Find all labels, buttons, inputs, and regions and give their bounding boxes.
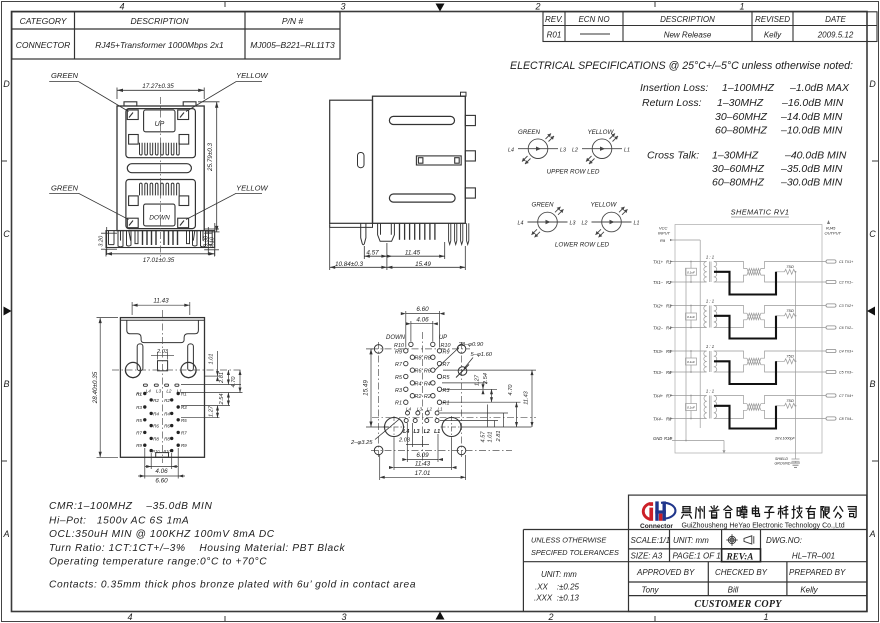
svg-text:1 : 1: 1 : 1: [706, 389, 714, 394]
svg-text:28.40±0.35: 28.40±0.35: [92, 371, 99, 404]
svg-text:C4 TX3+: C4 TX3+: [839, 350, 853, 354]
svg-text:L1: L1: [624, 147, 630, 153]
svg-text:UNIT: mm: UNIT: mm: [673, 536, 709, 545]
svg-text:1 : 1: 1 : 1: [706, 344, 714, 349]
svg-text:–10.0dB MIN: –10.0dB MIN: [780, 125, 843, 137]
svg-text:R2: R2: [153, 398, 159, 403]
svg-text:DOWN: DOWN: [149, 215, 170, 222]
svg-text:L1: L1: [437, 407, 443, 412]
svg-text:CUSTOMER COPY: CUSTOMER COPY: [694, 599, 782, 610]
svg-text:4: 4: [127, 612, 132, 622]
svg-text:R9: R9: [136, 443, 142, 448]
svg-text:CATEGORY: CATEGORY: [20, 16, 68, 26]
svg-text:GROUND: GROUND: [775, 462, 791, 466]
svg-text:GREEN: GREEN: [532, 202, 555, 209]
svg-text:Cross Talk:: Cross Talk:: [647, 150, 699, 162]
svg-text:C5 TX3–: C5 TX3–: [839, 371, 854, 375]
svg-text:11.43: 11.43: [153, 297, 169, 304]
svg-text:2: 2: [547, 612, 553, 622]
svg-text:Contacts: 0.35mm thick phos: Contacts: 0.35mm thick phos bronze plate…: [49, 580, 416, 591]
svg-text:1–30MHZ: 1–30MHZ: [717, 97, 764, 109]
svg-text:L3: L3: [570, 221, 576, 227]
svg-text:D: D: [3, 79, 10, 89]
svg-text:R9: R9: [443, 349, 450, 355]
svg-text:L2: L2: [166, 389, 172, 394]
svg-text:L3: L3: [560, 147, 566, 153]
svg-text:1 : 1: 1 : 1: [706, 255, 714, 260]
svg-text:Bill: Bill: [728, 586, 739, 595]
svg-text:Tony: Tony: [641, 586, 659, 595]
svg-text:Operating temperature range:: Operating temperature range:0°C to +70°C: [49, 557, 267, 568]
svg-text:1.27: 1.27: [208, 405, 214, 417]
svg-text:OCL:350uH MIN @ 100KHZ 100: OCL:350uH MIN @ 100KHZ 100mV 8mA DC: [49, 529, 275, 540]
svg-text:CHECKED BY: CHECKED BY: [715, 568, 768, 577]
svg-text:R4: R4: [153, 411, 159, 416]
svg-text:4.10: 4.10: [210, 236, 216, 248]
svg-text:L4: L4: [518, 221, 524, 227]
svg-text:YELLOW: YELLOW: [236, 184, 268, 193]
svg-text:4.06: 4.06: [155, 468, 168, 475]
svg-text:60–80MHZ: 60–80MHZ: [712, 177, 765, 189]
svg-text:L2: L2: [427, 407, 433, 412]
svg-text:17.01±0.35: 17.01±0.35: [143, 257, 175, 264]
svg-text:TX2+: TX2+: [653, 303, 664, 308]
svg-text:GREEN: GREEN: [51, 184, 79, 193]
svg-text:R7: R7: [395, 362, 403, 368]
svg-text:R01: R01: [547, 31, 562, 40]
svg-text:MJ005–B221–RL11T3: MJ005–B221–RL11T3: [250, 40, 335, 50]
svg-text:1.01: 1.01: [488, 432, 494, 443]
svg-text:L3: L3: [156, 389, 162, 394]
svg-text:C3 TX2+: C3 TX2+: [839, 304, 853, 308]
svg-text:LOWER ROW LED: LOWER ROW LED: [555, 242, 610, 249]
svg-text:R5: R5: [181, 418, 187, 423]
svg-text:L4: L4: [508, 147, 514, 153]
svg-text:6.60: 6.60: [416, 306, 429, 313]
svg-text:A: A: [2, 529, 9, 539]
svg-text:DATE: DATE: [825, 15, 846, 24]
svg-text:0.1uF: 0.1uF: [687, 360, 695, 364]
svg-text:2.81: 2.81: [219, 372, 225, 384]
svg-text:UNIT: mm: UNIT: mm: [541, 570, 577, 579]
svg-text:C: C: [3, 229, 10, 239]
svg-text:1.27: 1.27: [475, 374, 481, 386]
svg-text:R6: R6: [164, 424, 170, 429]
svg-text:2.54: 2.54: [219, 394, 225, 406]
svg-text:R7: R7: [136, 430, 142, 435]
svg-text:2–φ3.25: 2–φ3.25: [350, 440, 373, 446]
svg-text:R7: R7: [181, 430, 187, 435]
svg-text:L4: L4: [403, 429, 409, 435]
svg-text:SCALE:1/1: SCALE:1/1: [631, 536, 671, 545]
svg-text:11.43: 11.43: [524, 390, 530, 404]
svg-text:HL–TR–001: HL–TR–001: [792, 552, 835, 561]
svg-text:L2: L2: [582, 221, 588, 227]
svg-text:R5: R5: [443, 375, 451, 381]
svg-text:CONNECTOR: CONNECTOR: [16, 40, 71, 50]
svg-text:2: 2: [534, 2, 540, 12]
svg-text:DESCRIPTION: DESCRIPTION: [660, 15, 715, 24]
svg-text:Kelly: Kelly: [800, 586, 818, 595]
svg-text:INPUT: INPUT: [658, 231, 671, 236]
svg-text:6.60: 6.60: [155, 478, 168, 485]
svg-text:TX4–: TX4–: [653, 416, 664, 421]
svg-text:60–80MHZ: 60–80MHZ: [715, 125, 768, 137]
svg-text:10.84±0.3: 10.84±0.3: [335, 261, 363, 268]
svg-text:TX3+: TX3+: [653, 349, 664, 354]
svg-text:R4: R4: [415, 381, 422, 387]
svg-text:25.79±0.3: 25.79±0.3: [207, 143, 214, 172]
svg-text:4.70: 4.70: [231, 376, 237, 388]
svg-text:Kelly: Kelly: [764, 31, 782, 40]
svg-text:R10: R10: [394, 343, 404, 349]
svg-text:1: 1: [739, 2, 744, 12]
svg-text:REVISED: REVISED: [755, 15, 790, 24]
svg-text:New Release: New Release: [664, 31, 712, 40]
svg-text:TX4+: TX4+: [653, 393, 664, 398]
svg-text:L1: L1: [434, 429, 440, 435]
svg-text:R2: R2: [164, 398, 170, 403]
svg-text:Insertion Loss:: Insertion Loss:: [640, 82, 708, 94]
svg-text:5–φ1.60: 5–φ1.60: [471, 352, 493, 358]
svg-text:YELLOW: YELLOW: [588, 129, 615, 136]
svg-text:UP: UP: [155, 121, 165, 128]
svg-text:D: D: [869, 79, 876, 89]
svg-text:1–30MHZ: 1–30MHZ: [712, 150, 759, 162]
svg-text:11.43: 11.43: [415, 460, 431, 467]
svg-text:R9: R9: [181, 443, 187, 448]
svg-text:C7 TX4+: C7 TX4+: [839, 394, 853, 398]
svg-text:R4: R4: [424, 381, 431, 387]
svg-text:SHIELD: SHIELD: [775, 457, 788, 461]
svg-text:R4: R4: [164, 411, 170, 416]
svg-text:GuiZhousheng HeYao Electronic: GuiZhousheng HeYao Electronic Technology…: [682, 523, 845, 530]
svg-text:RJ45+Transformer 1000Mbps 2x: RJ45+Transformer 1000Mbps 2x1: [95, 40, 224, 50]
svg-text:PAGE:1 OF 1: PAGE:1 OF 1: [673, 552, 721, 561]
svg-text:OUTPUT: OUTPUT: [825, 231, 842, 236]
svg-text:R3: R3: [136, 405, 142, 410]
svg-text:R1: R1: [136, 392, 142, 397]
svg-text:3: 3: [340, 2, 345, 12]
svg-text:75Ω: 75Ω: [786, 398, 794, 403]
svg-text:P/N #: P/N #: [282, 16, 304, 26]
svg-text:Hi–Pot: 1500v AC 6S 1mA: Hi–Pot: 1500v AC 6S 1mA: [49, 516, 189, 527]
svg-text:GREEN: GREEN: [518, 129, 541, 136]
svg-text:30–60MHZ: 30–60MHZ: [715, 111, 768, 123]
svg-text:.XXX :±0.13: .XXX :±0.13: [534, 594, 579, 603]
svg-text:TX1–: TX1–: [653, 280, 664, 285]
svg-text:B: B: [3, 379, 9, 389]
svg-text:R9: R9: [395, 349, 402, 355]
svg-text:2009.5.12: 2009.5.12: [817, 31, 854, 40]
svg-text:2.54: 2.54: [483, 373, 489, 385]
svg-text:2.81: 2.81: [496, 431, 502, 443]
svg-text:L2: L2: [572, 147, 578, 153]
svg-text:REV:A: REV:A: [726, 552, 754, 562]
svg-text:–14.0dB MIN: –14.0dB MIN: [780, 111, 843, 123]
svg-text:4.70: 4.70: [508, 384, 514, 396]
svg-text:YELLOW: YELLOW: [236, 71, 268, 80]
svg-text:TX1+: TX1+: [653, 259, 664, 264]
svg-text:REV.: REV.: [545, 15, 563, 24]
svg-text:.XX :±0.25: .XX :±0.25: [535, 583, 580, 592]
svg-text:4.57: 4.57: [481, 431, 487, 443]
svg-text:15.49: 15.49: [415, 261, 431, 268]
svg-text:L2: L2: [424, 429, 430, 435]
svg-text:DESCRIPTION: DESCRIPTION: [130, 16, 189, 26]
svg-text:R6: R6: [153, 424, 159, 429]
svg-text:4: 4: [119, 2, 124, 12]
svg-text:11.45: 11.45: [405, 249, 421, 256]
svg-text:75Ω: 75Ω: [786, 308, 794, 313]
svg-text:–40.0dB MIN: –40.0dB MIN: [784, 150, 847, 162]
svg-text:30–60MHZ: 30–60MHZ: [712, 163, 765, 175]
svg-text:2.03: 2.03: [398, 438, 411, 444]
svg-text:–30.0dB MIN: –30.0dB MIN: [780, 177, 843, 189]
svg-text:R6: R6: [424, 369, 431, 375]
svg-text:SHEMATIC RV1: SHEMATIC RV1: [731, 208, 790, 217]
svg-text:R5: R5: [136, 418, 142, 423]
svg-text:4.06: 4.06: [416, 316, 429, 323]
svg-text:R2: R2: [424, 394, 431, 400]
svg-text:R8: R8: [415, 356, 422, 362]
svg-text:1 : 1: 1 : 1: [706, 299, 714, 304]
svg-text:R9: R9: [660, 238, 666, 243]
svg-text:R5: R5: [395, 375, 403, 381]
svg-text:TX3–: TX3–: [653, 370, 664, 375]
svg-text:0.1uF: 0.1uF: [687, 406, 695, 410]
svg-text:2KV,1000pF: 2KV,1000pF: [774, 437, 796, 441]
svg-text:6.09: 6.09: [416, 452, 429, 459]
svg-text:ECN NO: ECN NO: [578, 15, 609, 24]
svg-text:CMR:1–100MHZ –35.0dB MIN: CMR:1–100MHZ –35.0dB MIN: [49, 501, 212, 512]
svg-text:R1: R1: [443, 401, 450, 407]
svg-text:L4: L4: [146, 389, 152, 394]
svg-text:L1: L1: [634, 221, 640, 227]
svg-text:–35.0dB MIN: –35.0dB MIN: [780, 163, 843, 175]
svg-text:1–100MHZ: 1–100MHZ: [722, 82, 775, 94]
svg-text:R10: R10: [441, 343, 451, 349]
svg-text:–16.0dB MIN: –16.0dB MIN: [781, 97, 844, 109]
svg-text:R7: R7: [443, 362, 451, 368]
svg-text:C: C: [869, 229, 876, 239]
svg-text:SPECIFED TOLERANCES: SPECIFED TOLERANCES: [531, 548, 619, 557]
svg-text:B: B: [869, 379, 875, 389]
svg-text:UP: UP: [439, 335, 447, 341]
svg-text:Return Loss:: Return Loss:: [642, 97, 702, 109]
svg-text:C1 TX1+: C1 TX1+: [839, 260, 853, 264]
svg-text:17.01: 17.01: [415, 470, 431, 477]
svg-text:SIZE: A3: SIZE: A3: [631, 552, 663, 561]
svg-text:R2: R2: [415, 394, 422, 400]
svg-text:Connector: Connector: [640, 523, 673, 530]
svg-text:PREPARED BY: PREPARED BY: [789, 568, 846, 577]
svg-text:L4: L4: [406, 407, 412, 412]
svg-text:0.1uF: 0.1uF: [687, 270, 695, 274]
svg-text:R8: R8: [424, 356, 431, 362]
svg-text:Turn Ratio: 1CT:1CT+/–3%: Turn Ratio: 1CT:1CT+/–3% Housing Materia…: [49, 543, 345, 554]
svg-text:UNLESS OTHERWISE: UNLESS OTHERWISE: [531, 536, 606, 545]
svg-text:DWG.NO:: DWG.NO:: [766, 536, 802, 545]
svg-text:ELECTRICAL SPECIFICATIONS @: ELECTRICAL SPECIFICATIONS @ 25°C+/–5°C u…: [510, 60, 853, 72]
svg-text:–1.0dB MAX: –1.0dB MAX: [789, 82, 850, 94]
svg-text:R3: R3: [443, 388, 450, 394]
svg-text:3: 3: [341, 612, 346, 622]
svg-text:R6: R6: [415, 369, 422, 375]
svg-text:R1: R1: [395, 401, 402, 407]
svg-text:R8: R8: [153, 436, 159, 441]
svg-text:75Ω: 75Ω: [786, 354, 794, 359]
svg-text:YELLOW: YELLOW: [591, 202, 618, 209]
svg-text:C6 TX2–: C6 TX2–: [839, 326, 854, 330]
svg-text:TX2–: TX2–: [653, 325, 664, 330]
svg-text:UPPER ROW LED: UPPER ROW LED: [547, 169, 600, 176]
svg-text:L3: L3: [413, 429, 419, 435]
svg-text:28–φ0.90: 28–φ0.90: [458, 342, 485, 348]
svg-text:L3: L3: [417, 407, 423, 412]
svg-text:C8 TX4–: C8 TX4–: [839, 417, 854, 421]
svg-text:3.30: 3.30: [203, 235, 209, 247]
svg-text:GREEN: GREEN: [51, 71, 79, 80]
svg-text:1.01: 1.01: [208, 354, 214, 365]
svg-text:75Ω: 75Ω: [786, 264, 794, 269]
svg-text:DOWN: DOWN: [386, 335, 406, 341]
svg-text:0.1uF: 0.1uF: [687, 315, 695, 319]
svg-text:1: 1: [763, 612, 768, 622]
svg-text:C2 TX1–: C2 TX1–: [839, 281, 854, 285]
svg-text:R8: R8: [164, 436, 170, 441]
svg-text:GND: GND: [653, 436, 662, 441]
svg-text:17.27±0.35: 17.27±0.35: [142, 83, 174, 90]
svg-text:3.20: 3.20: [98, 235, 104, 247]
svg-text:15.49: 15.49: [362, 380, 369, 396]
svg-text:A: A: [868, 529, 875, 539]
svg-text:APPROVED BY: APPROVED BY: [636, 568, 695, 577]
svg-text:4.57: 4.57: [366, 249, 379, 256]
svg-text:R3: R3: [395, 388, 402, 394]
